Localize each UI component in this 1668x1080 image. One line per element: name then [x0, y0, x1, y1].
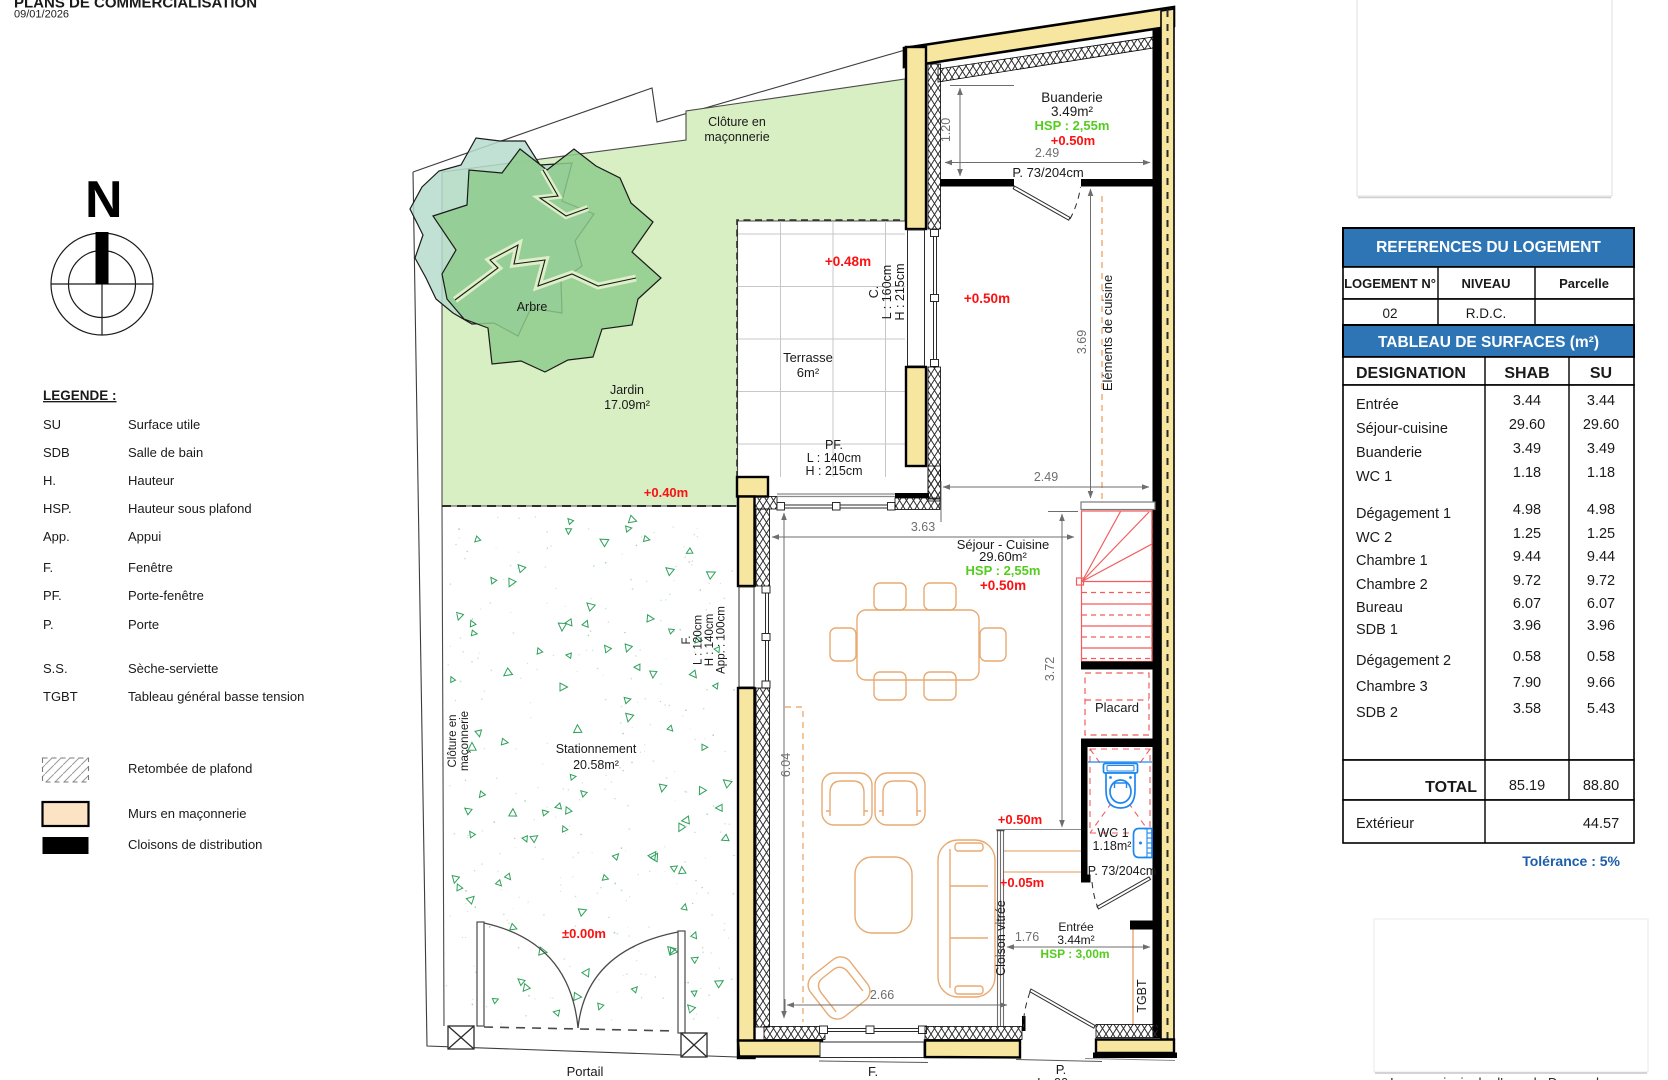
svg-text:Entrée: Entrée: [1058, 920, 1094, 934]
svg-text:6m²: 6m²: [797, 365, 820, 380]
svg-text:1.20: 1.20: [939, 118, 953, 142]
svg-text:Murs en maçonnerie: Murs en maçonnerie: [128, 806, 247, 821]
svg-text:F.: F.: [681, 636, 693, 645]
svg-text:Dégagement 1: Dégagement 1: [1356, 506, 1451, 522]
svg-text:±0.00m: ±0.00m: [562, 926, 606, 941]
svg-text:Dégagement 2: Dégagement 2: [1356, 653, 1451, 669]
svg-text:9.66: 9.66: [1587, 675, 1615, 691]
svg-text:6.07: 6.07: [1513, 596, 1541, 612]
svg-text:P.: P.: [1056, 1062, 1067, 1077]
svg-text:Portail: Portail: [567, 1064, 604, 1079]
svg-text:+0.50m: +0.50m: [980, 578, 1026, 593]
svg-text:Eléments de cuisine: Eléments de cuisine: [1100, 275, 1115, 391]
svg-text:6.07: 6.07: [1587, 596, 1615, 612]
svg-text:PF.: PF.: [825, 438, 843, 452]
svg-text:2.49: 2.49: [1034, 470, 1058, 484]
svg-text:L : 160cm: L : 160cm: [880, 265, 894, 319]
svg-text:LEGENDE :: LEGENDE :: [43, 388, 117, 403]
svg-text:4.98: 4.98: [1587, 502, 1615, 518]
svg-text:P.: P.: [43, 617, 54, 632]
svg-text:H.: H.: [43, 473, 56, 488]
svg-text:3.44: 3.44: [1513, 393, 1541, 409]
svg-text:3.72: 3.72: [1043, 657, 1057, 681]
svg-text:SDB 2: SDB 2: [1356, 705, 1398, 721]
svg-text:LOGEMENT N°: LOGEMENT N°: [1344, 276, 1436, 291]
svg-text:1.25: 1.25: [1513, 526, 1541, 542]
svg-text:Clôture en: Clôture en: [447, 714, 459, 767]
svg-text:Jardin: Jardin: [610, 383, 644, 397]
svg-text:H : 215cm: H : 215cm: [893, 264, 907, 321]
svg-text:1.18: 1.18: [1587, 465, 1615, 481]
svg-text:3.58: 3.58: [1513, 701, 1541, 717]
svg-text:TOTAL: TOTAL: [1425, 779, 1477, 796]
svg-text:P. 73/204cm: P. 73/204cm: [1088, 864, 1157, 878]
svg-text:App. : 100cm: App. : 100cm: [716, 606, 728, 674]
svg-text:29.60: 29.60: [1583, 417, 1619, 433]
svg-text:Sèche-serviette: Sèche-serviette: [128, 661, 218, 676]
svg-text:Entrée: Entrée: [1356, 397, 1399, 413]
svg-text:SHAB: SHAB: [1504, 365, 1549, 382]
svg-text:H : 140cm: H : 140cm: [704, 614, 716, 666]
svg-text:20.58m²: 20.58m²: [573, 758, 619, 772]
svg-text:29.60m²: 29.60m²: [979, 549, 1027, 564]
svg-text:H : 215cm: H : 215cm: [806, 464, 863, 478]
svg-text:5.43: 5.43: [1587, 701, 1615, 717]
svg-text:TGBT: TGBT: [1135, 979, 1149, 1013]
svg-text:Chambre 1: Chambre 1: [1356, 553, 1428, 569]
svg-text:3.49: 3.49: [1587, 441, 1615, 457]
svg-text:REFERENCES DU LOGEMENT: REFERENCES DU LOGEMENT: [1376, 239, 1601, 256]
svg-text:NIVEAU: NIVEAU: [1461, 276, 1510, 291]
svg-text:WC 2: WC 2: [1356, 530, 1392, 546]
svg-text:SU: SU: [1590, 365, 1612, 382]
svg-text:6.04: 6.04: [779, 753, 793, 777]
svg-text:0.58: 0.58: [1513, 649, 1541, 665]
svg-text:PF.: PF.: [43, 588, 62, 603]
svg-text:3.49: 3.49: [1513, 441, 1541, 457]
svg-text:9.72: 9.72: [1587, 573, 1615, 589]
svg-text:Surface utile: Surface utile: [128, 417, 200, 432]
svg-text:Placard: Placard: [1095, 700, 1139, 715]
svg-text:L : 140cm: L : 140cm: [807, 451, 861, 465]
svg-text:Salle de bain: Salle de bain: [128, 445, 203, 460]
svg-text:9.44: 9.44: [1513, 549, 1541, 565]
svg-text:Cloison vitrée: Cloison vitrée: [994, 900, 1008, 976]
svg-text:HSP : 2,55m: HSP : 2,55m: [966, 563, 1041, 578]
svg-text:Chambre 3: Chambre 3: [1356, 679, 1428, 695]
svg-text:+0.50m: +0.50m: [964, 291, 1010, 306]
svg-text:1.18m²: 1.18m²: [1093, 839, 1132, 853]
svg-text:Parcelle: Parcelle: [1559, 276, 1609, 291]
svg-text:3.96: 3.96: [1513, 618, 1541, 634]
svg-text:17.09m²: 17.09m²: [604, 398, 650, 412]
svg-text:1.25: 1.25: [1587, 526, 1615, 542]
svg-text:1.18: 1.18: [1513, 465, 1541, 481]
svg-text:Fenêtre: Fenêtre: [128, 560, 173, 575]
svg-text:HSP.: HSP.: [43, 501, 72, 516]
svg-text:3.69: 3.69: [1075, 330, 1089, 354]
svg-text:29.60: 29.60: [1509, 417, 1545, 433]
svg-text:N: N: [85, 171, 123, 229]
svg-text:Séjour-cuisine: Séjour-cuisine: [1356, 421, 1448, 437]
svg-text:Cloisons de distribution: Cloisons de distribution: [128, 837, 262, 852]
svg-text:Appui: Appui: [128, 529, 161, 544]
svg-text:+0.05m: +0.05m: [1000, 875, 1044, 890]
svg-text:Tolérance : 5%: Tolérance : 5%: [1522, 853, 1620, 869]
svg-text:Arbre: Arbre: [517, 300, 548, 314]
svg-text:S.S.: S.S.: [43, 661, 68, 676]
svg-text:9.72: 9.72: [1513, 573, 1541, 589]
svg-text:SU: SU: [43, 417, 61, 432]
svg-text:L : 120cm: L : 120cm: [693, 615, 705, 665]
svg-text:+0.50m: +0.50m: [998, 812, 1042, 827]
svg-text:3.63: 3.63: [911, 520, 935, 534]
svg-text:3.96: 3.96: [1587, 618, 1615, 634]
svg-text:Extérieur: Extérieur: [1356, 816, 1414, 832]
svg-text:HSP : 3,00m: HSP : 3,00m: [1040, 947, 1109, 961]
svg-text:SDB 1: SDB 1: [1356, 622, 1398, 638]
svg-text:WC 1: WC 1: [1356, 469, 1392, 485]
svg-text:F.: F.: [43, 560, 53, 575]
svg-text:maçonnerie: maçonnerie: [704, 130, 769, 144]
svg-text:+0.48m: +0.48m: [825, 254, 871, 269]
svg-text:Hauteur sous plafond: Hauteur sous plafond: [128, 501, 252, 516]
svg-text:Image principale d'une de Dema: Image principale d'une de Demande: [1390, 1076, 1606, 1080]
svg-text:Buanderie: Buanderie: [1356, 445, 1422, 461]
svg-text:DESIGNATION: DESIGNATION: [1356, 365, 1466, 382]
svg-text:P. 73/204cm: P. 73/204cm: [1012, 165, 1083, 180]
svg-text:C.: C.: [867, 286, 881, 299]
svg-text:App.: App.: [43, 529, 70, 544]
svg-text:F.: F.: [868, 1064, 878, 1079]
svg-text:1.76: 1.76: [1015, 930, 1039, 944]
svg-text:2.66: 2.66: [870, 988, 894, 1002]
svg-text:88.80: 88.80: [1583, 778, 1619, 794]
svg-text:Porte: Porte: [128, 617, 159, 632]
svg-text:3.44: 3.44: [1587, 393, 1615, 409]
svg-text:TABLEAU DE SURFACES (m²): TABLEAU DE SURFACES (m²): [1378, 334, 1599, 351]
svg-text:44.57: 44.57: [1583, 816, 1619, 832]
svg-text:4.98: 4.98: [1513, 502, 1541, 518]
svg-text:02: 02: [1382, 306, 1397, 321]
svg-text:3.49m²: 3.49m²: [1051, 104, 1094, 119]
svg-text:Stationnement: Stationnement: [556, 742, 637, 756]
svg-text:WC 1: WC 1: [1097, 826, 1128, 840]
svg-text:HSP : 2,55m: HSP : 2,55m: [1035, 118, 1110, 133]
svg-text:85.19: 85.19: [1509, 778, 1545, 794]
svg-text:+0.40m: +0.40m: [644, 485, 688, 500]
svg-text:SDB: SDB: [43, 445, 70, 460]
svg-text:maçonnerie: maçonnerie: [459, 711, 471, 771]
svg-text:2.49: 2.49: [1035, 146, 1059, 160]
svg-text:09/01/2026: 09/01/2026: [14, 9, 69, 21]
svg-text:Clôture en: Clôture en: [708, 115, 766, 129]
svg-text:Terrasse: Terrasse: [783, 350, 833, 365]
svg-text:0.58: 0.58: [1587, 649, 1615, 665]
svg-text:Porte-fenêtre: Porte-fenêtre: [128, 588, 204, 603]
svg-text:3.44m²: 3.44m²: [1057, 933, 1094, 947]
svg-text:R.D.C.: R.D.C.: [1466, 306, 1507, 321]
svg-text:7.90: 7.90: [1513, 675, 1541, 691]
svg-text:Buanderie: Buanderie: [1041, 90, 1103, 105]
svg-text:L : 90cm: L : 90cm: [1037, 1076, 1084, 1080]
svg-text:Hauteur: Hauteur: [128, 473, 175, 488]
svg-text:TGBT: TGBT: [43, 689, 78, 704]
svg-text:9.44: 9.44: [1587, 549, 1615, 565]
svg-text:Tableau général basse tension: Tableau général basse tension: [128, 689, 304, 704]
svg-text:Retombée de plafond: Retombée de plafond: [128, 761, 252, 776]
svg-text:Bureau: Bureau: [1356, 600, 1403, 616]
svg-text:Chambre 2: Chambre 2: [1356, 577, 1428, 593]
